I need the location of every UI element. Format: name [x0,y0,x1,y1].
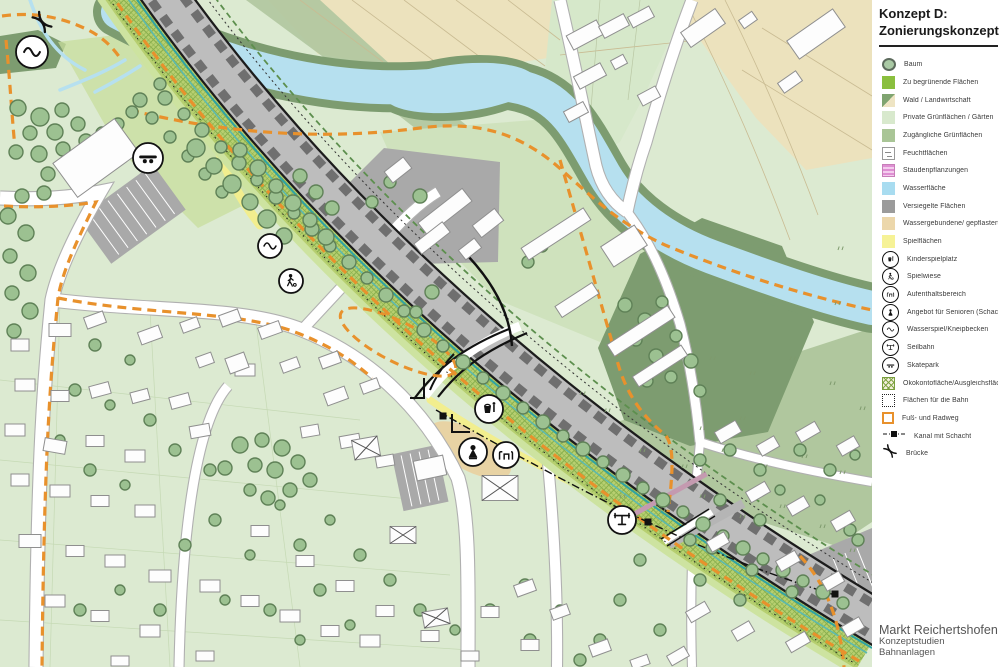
legend-title-line2: Zonierungskonzept [879,23,998,40]
legend-label: Seilbahn [907,344,935,351]
legend-panel: Konzept D: Zonierungskonzept BaumZu begr… [872,0,1000,667]
building [251,526,269,537]
legend-label: Wasserspiel/Kneipbecken [907,326,988,333]
legend-label: Skatepark [907,362,939,369]
building-marked-removal [390,527,416,544]
building [421,631,439,642]
pawn-icon [459,438,487,466]
legend-item-16: Wasserspiel/Kneipbecken [879,321,998,339]
legend-item-17: Seilbahn [879,339,998,357]
building [140,625,160,637]
legend-label: Angebot für Senioren (Schach, Boccia) [907,309,998,316]
legend-swatch-4 [882,111,895,124]
building [360,635,380,647]
legend-swatch-19 [882,377,895,390]
legend-item-15: Angebot für Senioren (Schach, Boccia) [879,303,998,321]
legend-label: Kinderspielplatz [907,256,957,263]
legend-swatch-20 [882,394,895,407]
bench-legend-icon [882,286,899,303]
legend-label: Ökokontofläche/Ausgleichsfläche [903,380,998,387]
building [461,651,479,661]
map-canvas [0,0,872,667]
building [521,640,539,651]
building [241,596,259,607]
legend-label: Wasserfläche [903,185,946,192]
legend-item-23: Brücke [879,445,998,463]
building [86,436,104,447]
building [91,611,109,622]
building [481,607,499,618]
legend-item-22: Kanal mit Schacht [879,427,998,445]
building [51,391,69,402]
building [111,656,129,666]
building [149,570,171,582]
building [376,606,394,617]
building [19,535,41,548]
seil-legend-icon [882,339,899,356]
skate-icon [133,143,163,173]
legend-label: Wassergebundene/ gepflasterte Flächen [903,220,998,227]
building [336,581,354,592]
building-marked-removal [351,436,380,460]
footer-topic: Bahnanlagen [879,648,998,659]
legend-item-5: Zugängliche Grünflächen [879,127,998,145]
bucket-icon [475,395,503,423]
legend-label: Kanal mit Schacht [914,433,971,440]
building [49,324,71,337]
legend-swatch-11 [882,235,895,248]
legend-title-line1: Konzept D: [879,6,998,23]
legend-swatch-21 [882,412,894,424]
legend-item-3: Wald / Landwirtschaft [879,91,998,109]
legend-item-14: Aufenthaltsbereich [879,286,998,304]
legend-items: BaumZu begrünende FlächenWald / Landwirt… [879,56,998,463]
building [11,474,29,486]
building [196,651,214,661]
bench-icon [493,442,519,468]
legend-swatch-1 [882,58,896,71]
legend-label: Feuchtflächen [903,150,948,157]
wave-icon [16,36,48,68]
bridge-symbol-icon [882,443,898,464]
legend-label: Versiegelte Flächen [903,203,965,210]
building [135,505,155,517]
legend-swatch-8 [882,182,895,195]
plan-sheet: Konzept D: Zonierungskonzept BaumZu begr… [0,0,1000,667]
legend-item-4: Private Grünflächen / Gärten [879,109,998,127]
building [125,450,145,462]
legend-item-18: Skatepark [879,356,998,374]
legend-label: Aufenthaltsbereich [907,291,966,298]
legend-item-13: Spielwiese [879,268,998,286]
walk-icon [279,269,303,293]
wave-legend-icon [882,321,899,338]
walk-legend-icon [882,268,899,285]
legend-item-11: Spielflächen [879,233,998,251]
plan-footer: Markt Reichertshofen Konzeptstudien Bahn… [879,623,998,659]
legend-label: Wald / Landwirtschaft [903,97,971,104]
legend-label: Flächen für die Bahn [903,397,969,404]
building [91,496,109,507]
building [11,339,29,351]
legend-item-10: Wassergebundene/ gepflasterte Flächen [879,215,998,233]
legend-swatch-3 [882,94,895,107]
building-marked-removal [482,476,518,501]
legend-label: Spielwiese [907,273,941,280]
legend-label: Zu begrünende Flächen [903,79,978,86]
legend-label: Spielflächen [903,238,942,245]
skate-legend-icon [882,357,899,374]
legend-item-12: Kinderspielplatz [879,250,998,268]
legend-swatch-2 [882,76,895,89]
building [200,580,220,592]
legend-item-8: Wasserfläche [879,180,998,198]
legend-label: Staudenpflanzungen [903,167,968,174]
building [15,379,35,391]
legend-swatch-6 [882,147,895,160]
building [45,595,65,607]
legend-label: Baum [904,61,922,68]
legend-swatch-7 [882,164,895,177]
legend-item-20: Flächen für die Bahn [879,392,998,410]
pawn-legend-icon [882,304,899,321]
legend-item-19: Ökokontofläche/Ausgleichsfläche [879,374,998,392]
building [66,546,84,557]
legend-title: Konzept D: Zonierungskonzept [879,6,998,47]
legend-item-6: Feuchtflächen [879,144,998,162]
legend-label: Zugängliche Grünflächen [903,132,982,139]
legend-item-21: Fuß- und Radweg [879,410,998,428]
legend-item-1: Baum [879,56,998,74]
building [5,424,25,436]
footer-municipality: Markt Reichertshofen [879,623,998,637]
legend-item-7: Staudenpflanzungen [879,162,998,180]
building [50,485,70,497]
legend-swatch-9 [882,200,895,213]
building [296,556,314,567]
seil-icon [608,506,636,534]
building [105,555,125,567]
legend-item-2: Zu begrünende Flächen [879,73,998,91]
legend-label: Brücke [906,450,928,457]
bucket-legend-icon [882,251,899,268]
wave-icon [258,234,282,258]
building [280,610,300,622]
legend-label: Fuß- und Radweg [902,415,959,422]
legend-label: Private Grünflächen / Gärten [903,114,994,121]
legend-swatch-10 [882,217,895,230]
building [321,626,339,637]
legend-swatch-5 [882,129,895,142]
legend-item-9: Versiegelte Flächen [879,197,998,215]
